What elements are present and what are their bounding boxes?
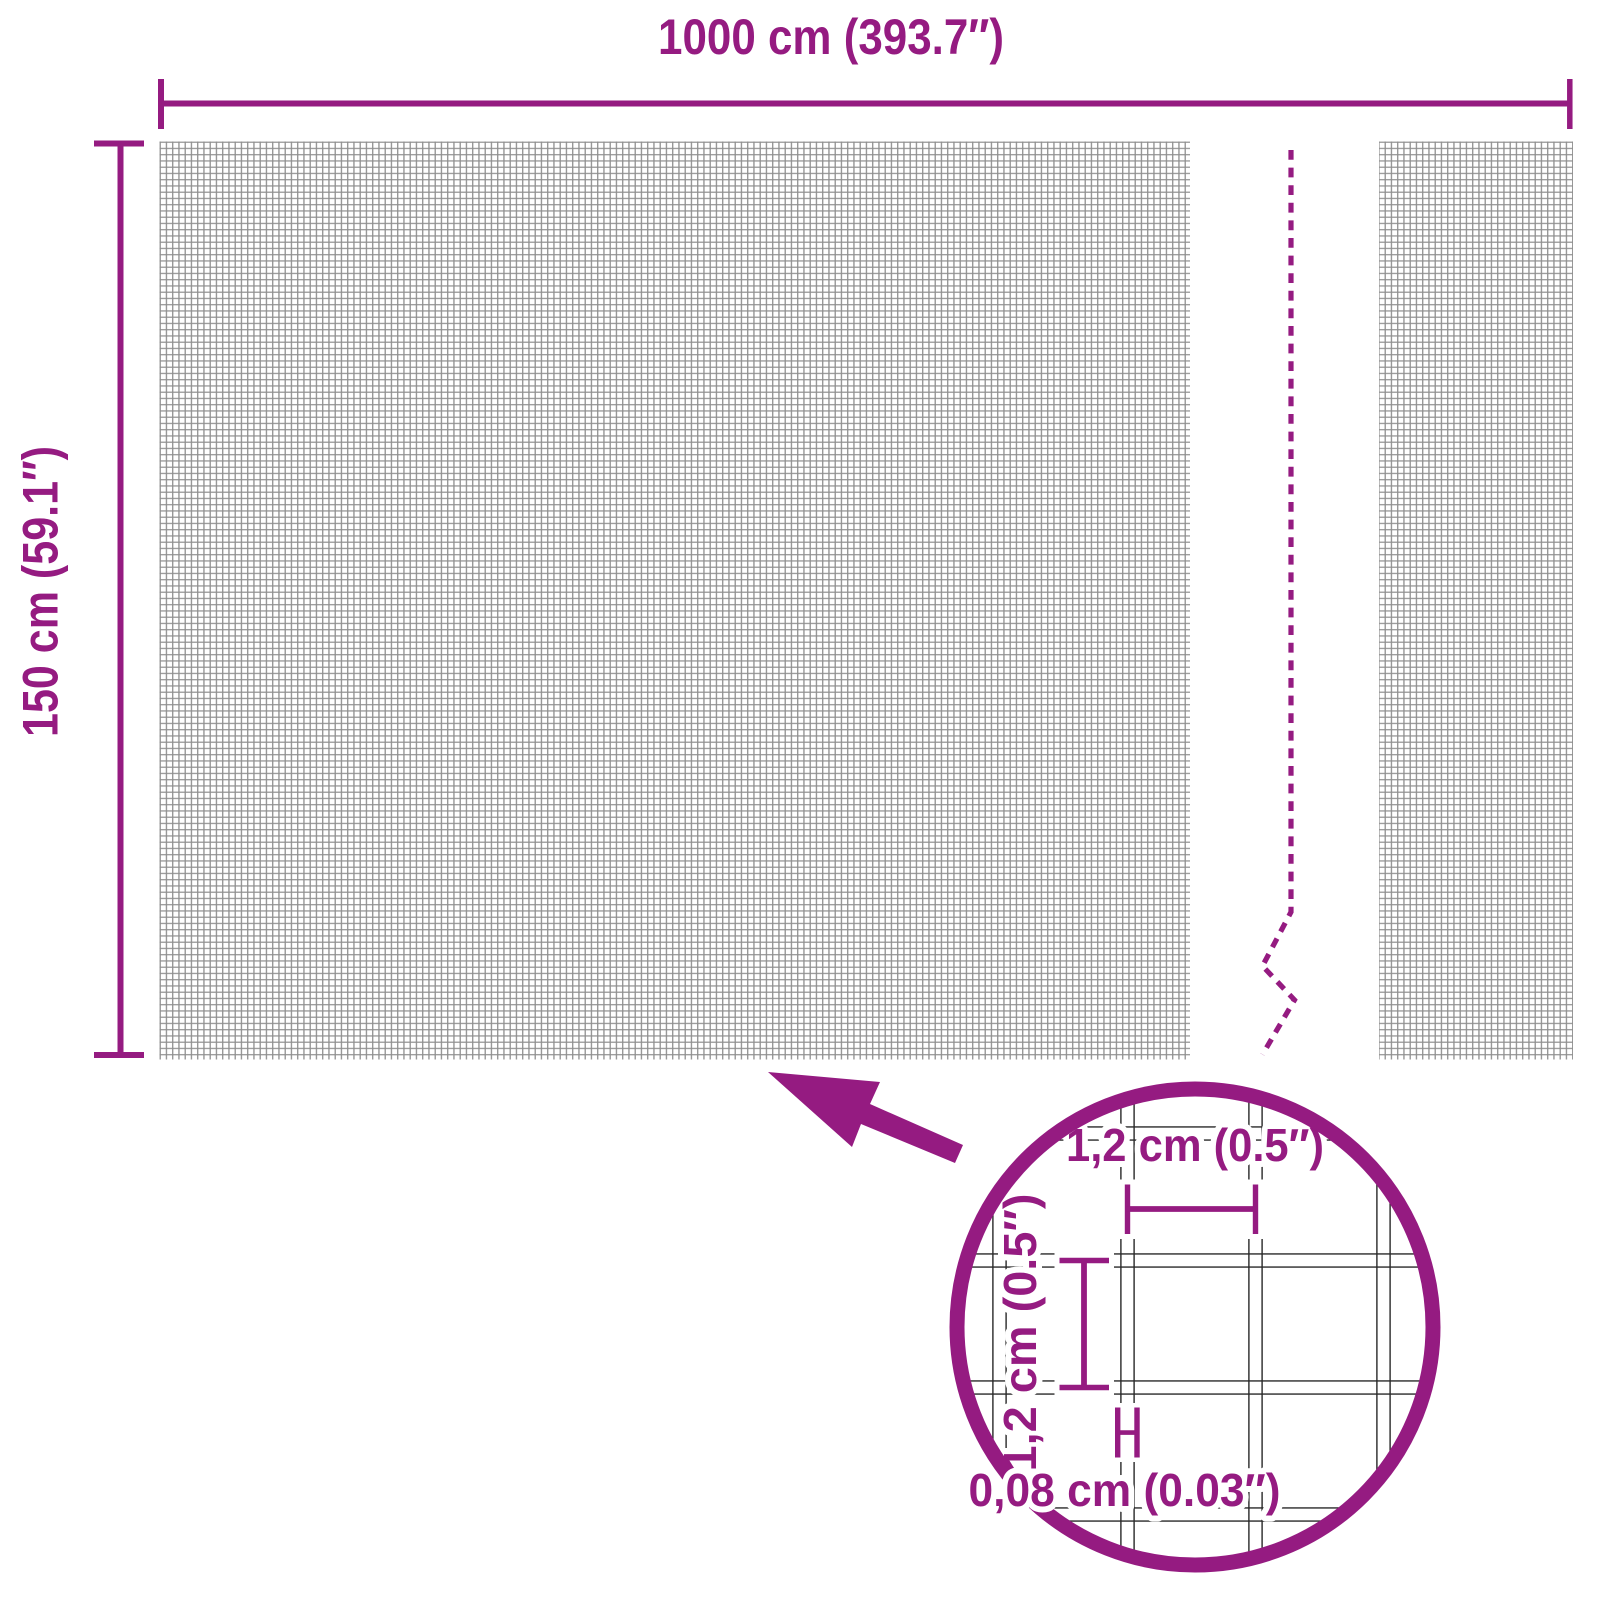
svg-text:1,2 cm (0.5″): 1,2 cm (0.5″): [994, 1194, 1046, 1472]
svg-text:0,08 cm (0.03″): 0,08 cm (0.03″): [969, 1464, 1281, 1516]
svg-text:150 cm (59.1″): 150 cm (59.1″): [13, 446, 69, 737]
svg-text:1000 cm (393.7″): 1000 cm (393.7″): [658, 9, 1004, 65]
svg-text:1,2 cm (0.5″): 1,2 cm (0.5″): [1066, 1119, 1324, 1171]
